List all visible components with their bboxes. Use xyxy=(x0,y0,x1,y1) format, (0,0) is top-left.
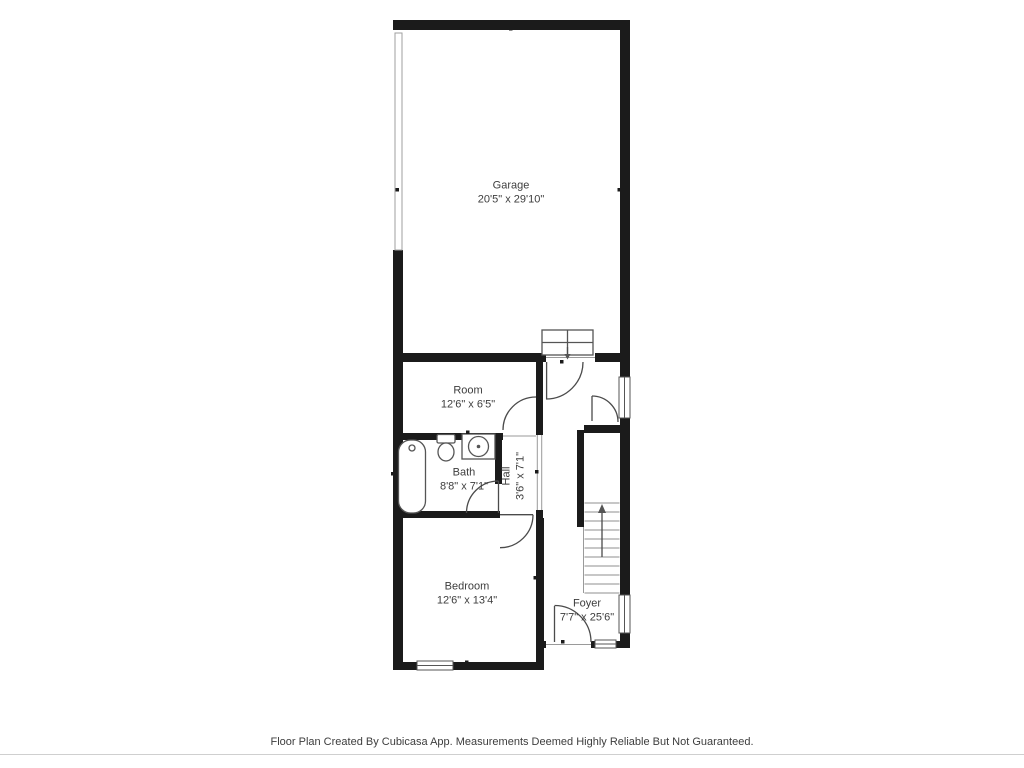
bathtub-icon xyxy=(399,440,426,513)
floor-plan-canvas: Garage 20'5" x 29'10" Room 12'6" x 6'5" … xyxy=(0,0,1024,768)
toilet-icon xyxy=(437,435,455,462)
room-dims: 20'5" x 29'10" xyxy=(478,193,544,207)
window-right-lower xyxy=(619,595,630,633)
sink-icon xyxy=(462,434,495,459)
room-label-foyer: Foyer 7'7" x 25'6" xyxy=(560,598,614,625)
room-label-room: Room 12'6" x 6'5" xyxy=(441,385,495,412)
room-name: Garage xyxy=(478,180,544,194)
bedroom-door xyxy=(500,515,533,548)
room-label-bedroom: Bedroom 12'6" x 13'4" xyxy=(437,581,497,608)
room-name: Bath xyxy=(440,467,488,481)
walls xyxy=(393,20,630,670)
garage-entry-door xyxy=(546,362,583,399)
window-bedroom xyxy=(417,661,453,670)
window-foyer xyxy=(595,640,616,648)
room-label-bath: Bath 8'8" x 7'1" xyxy=(440,467,488,494)
room-dims: 8'8" x 7'1" xyxy=(440,480,488,494)
floor-plan-drawing xyxy=(0,0,1024,768)
room-name: Bedroom xyxy=(437,581,497,595)
room-name: Foyer xyxy=(560,598,614,612)
bottom-rule xyxy=(0,754,1024,755)
garage-door xyxy=(395,33,402,250)
room-door xyxy=(503,397,536,430)
footer-disclaimer: Floor Plan Created By Cubicasa App. Meas… xyxy=(270,736,753,748)
room-label-hall: Hall 3'6" x 7'1" xyxy=(501,452,528,500)
landing-door xyxy=(592,396,618,422)
room-dims: 7'7" x 25'6" xyxy=(560,611,614,625)
window-right-upper xyxy=(619,377,630,418)
room-name: Hall xyxy=(501,452,515,500)
room-dims: 12'6" x 13'4" xyxy=(437,594,497,608)
room-name: Room xyxy=(441,385,495,399)
room-dims: 12'6" x 6'5" xyxy=(441,398,495,412)
room-dims: 3'6" x 7'1" xyxy=(514,452,528,500)
room-label-garage: Garage 20'5" x 29'10" xyxy=(478,180,544,207)
